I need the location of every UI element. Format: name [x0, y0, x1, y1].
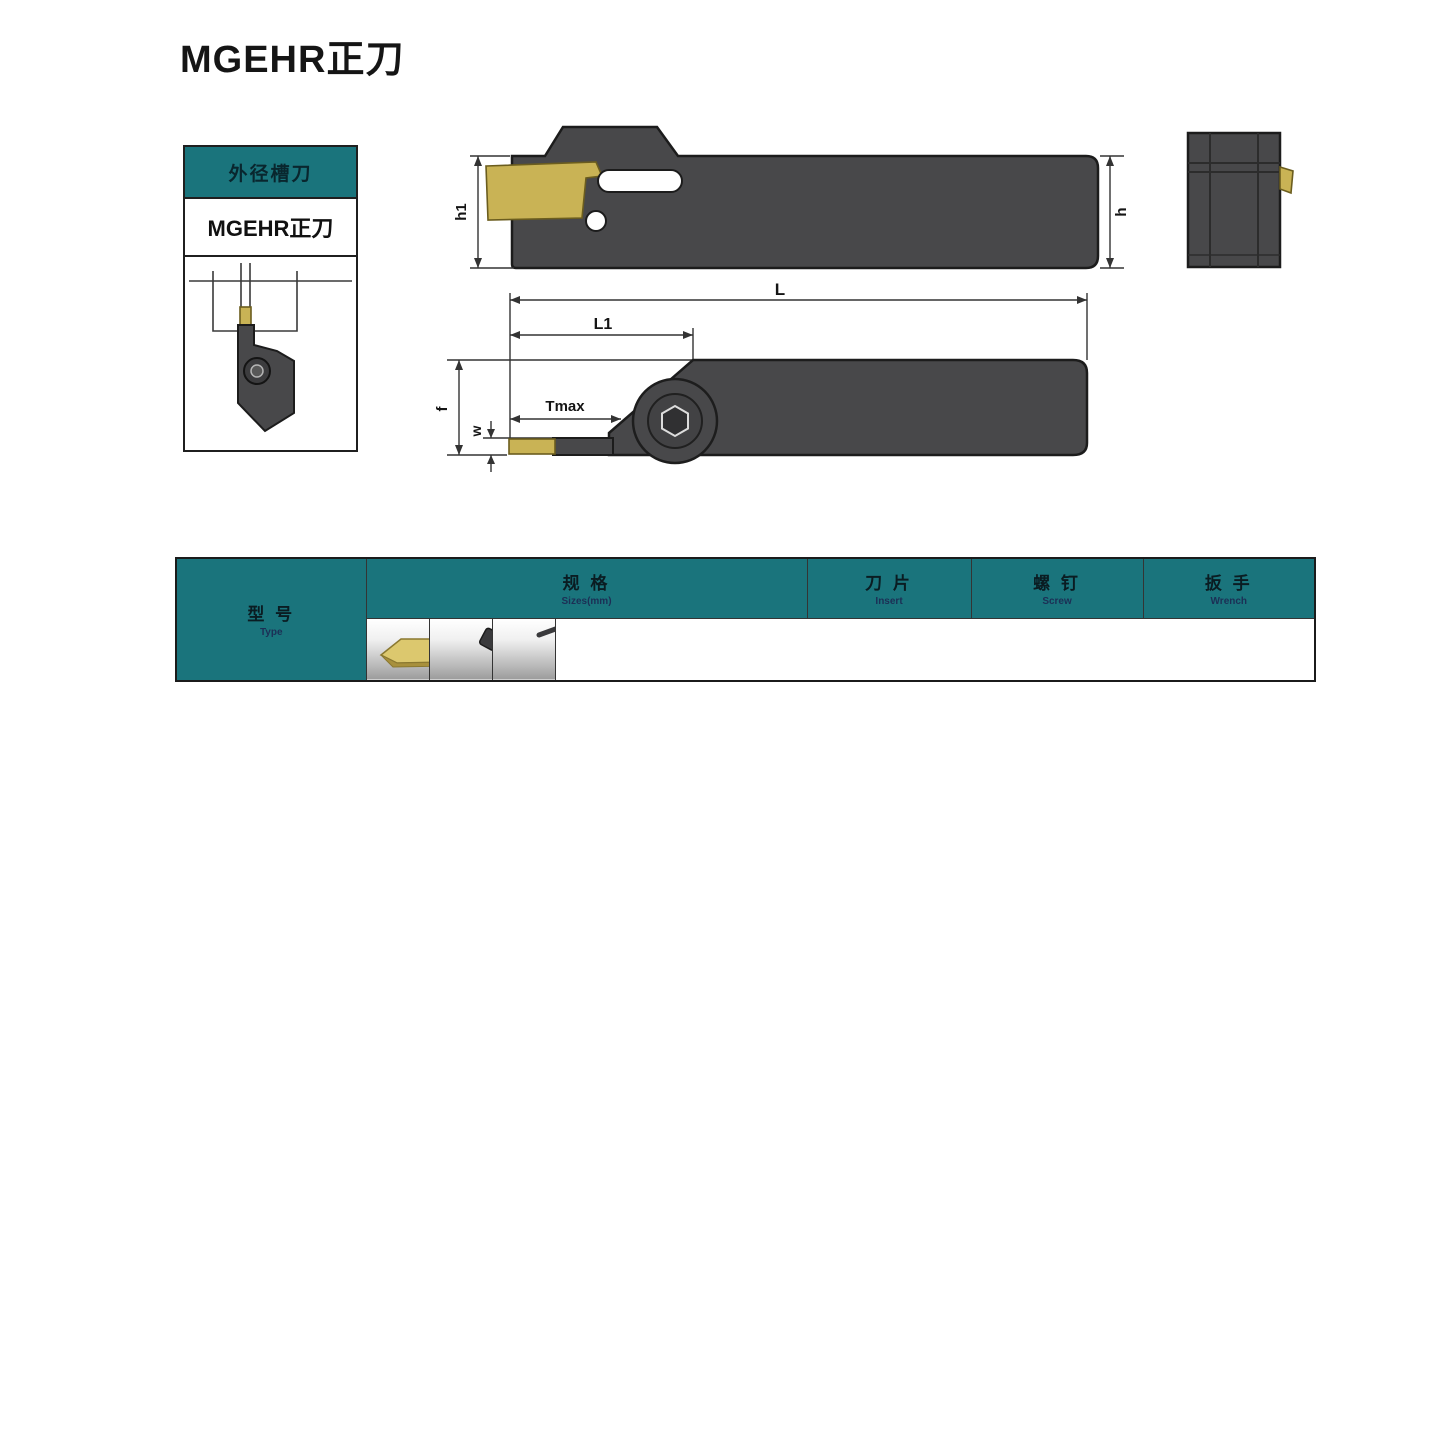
insert-tip — [240, 307, 251, 325]
dim-label-h1: h1 — [453, 203, 470, 221]
insert-end — [1280, 167, 1293, 193]
clamp-slot — [598, 170, 682, 192]
col-header-type: 型 号 Type — [176, 558, 366, 681]
wrench-photo-icon — [493, 619, 556, 675]
insert-header-en: Insert — [808, 596, 971, 607]
screw-header-zh: 螺 钉 — [972, 569, 1143, 594]
spec-header-zh: 规 格 — [367, 569, 807, 594]
clamp-screw-socket — [251, 365, 263, 377]
col-header-spec: 规 格 Sizes(mm) — [366, 558, 807, 618]
blade-top — [553, 438, 613, 455]
type-header-en: Type — [177, 627, 366, 638]
insert-header-zh: 刀 片 — [808, 569, 971, 594]
dim-label-L: L — [775, 283, 785, 299]
model-name: MGEHR正刀 — [185, 199, 356, 257]
insert-top — [509, 439, 555, 454]
grooving-application-diagram — [185, 257, 356, 450]
type-header-zh: 型 号 — [177, 600, 366, 625]
toolholder-end-body — [1188, 133, 1280, 267]
col-header-wrench: 扳 手 Wrench — [1143, 558, 1315, 618]
category-panel: 外径槽刀 MGEHR正刀 — [183, 145, 358, 452]
wrench-photo-cell — [492, 618, 555, 681]
hex-socket — [662, 406, 688, 436]
side-view-drawing: h1 h — [450, 118, 1130, 298]
end-view-drawing — [1180, 125, 1305, 275]
screw-photo-cell — [429, 618, 492, 681]
dim-label-w: w — [468, 425, 484, 437]
category-header: 外径槽刀 — [185, 147, 356, 199]
screw-photo-icon — [430, 621, 493, 673]
toolholder-side-body — [512, 127, 1098, 268]
spec-sheet-page: { "page": { "title": "MGEHR正刀" }, "side_… — [0, 0, 1440, 1440]
dim-label-Tmax: Tmax — [545, 398, 585, 415]
dim-label-f: f — [435, 406, 451, 412]
wrench-header-en: Wrench — [1144, 596, 1315, 607]
wrench-header-zh: 扳 手 — [1144, 569, 1315, 594]
spec-table: 型 号 Type 规 格 Sizes(mm) 刀 片 Insert 螺 钉 Sc… — [175, 557, 1314, 682]
insert-photo-icon — [367, 621, 430, 673]
dim-label-h: h — [1113, 207, 1130, 216]
page-title: MGEHR正刀 — [180, 28, 404, 83]
col-header-screw: 螺 钉 Screw — [971, 558, 1143, 618]
groove-profile — [213, 271, 297, 331]
dim-label-L1: L1 — [594, 316, 613, 333]
col-header-insert: 刀 片 Insert — [807, 558, 971, 618]
relief-hole — [586, 211, 606, 231]
top-view-drawing: L L1 Tmax f w — [435, 283, 1125, 528]
spec-header-en: Sizes(mm) — [367, 596, 807, 607]
insert-photo-cell — [366, 618, 429, 681]
screw-header-en: Screw — [972, 596, 1143, 607]
